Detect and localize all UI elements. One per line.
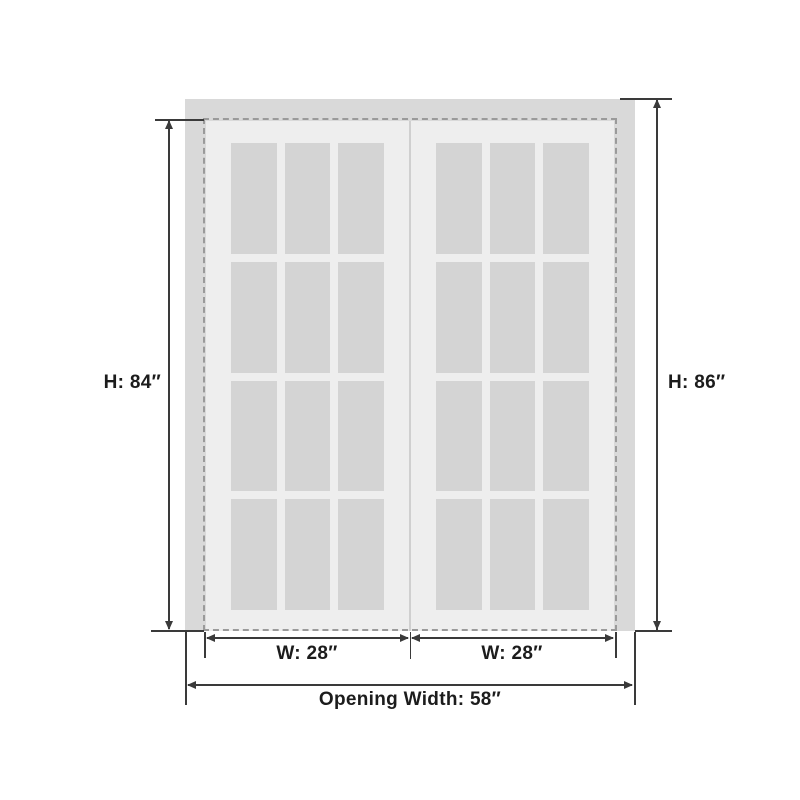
- arrow-right-icon: [624, 681, 633, 689]
- dimension-line-vertical: [656, 100, 658, 630]
- extension-line: [185, 632, 187, 705]
- extension-line: [620, 98, 672, 100]
- extension-line: [634, 632, 636, 705]
- extension-line: [155, 119, 204, 121]
- opening-height-label: H: 86″: [668, 372, 725, 394]
- arrow-down-icon: [165, 621, 173, 630]
- arrow-up-icon: [165, 120, 173, 129]
- extension-line: [151, 630, 204, 632]
- arrow-left-icon: [187, 681, 196, 689]
- extension-line: [635, 630, 672, 632]
- door-slab-outline: [203, 118, 617, 631]
- extension-line: [615, 632, 617, 658]
- dimension-line-horizontal: [207, 637, 408, 639]
- dimension-line-horizontal: [188, 684, 632, 686]
- arrow-right-icon: [400, 634, 409, 642]
- door-dimension-diagram: H: 84″ H: 86″ W: 28″ W: 28″ Opening Widt…: [0, 0, 800, 800]
- left-door-width-label: W: 28″: [232, 643, 382, 665]
- arrow-right-icon: [605, 634, 614, 642]
- arrow-up-icon: [653, 99, 661, 108]
- arrow-left-icon: [411, 634, 420, 642]
- arrow-down-icon: [653, 621, 661, 630]
- right-door-width-label: W: 28″: [437, 643, 587, 665]
- dimension-line-vertical: [168, 121, 170, 629]
- dimension-line-horizontal: [412, 637, 613, 639]
- arrow-left-icon: [206, 634, 215, 642]
- door-height-label: H: 84″: [86, 372, 161, 394]
- opening-width-label: Opening Width: 58″: [285, 689, 535, 711]
